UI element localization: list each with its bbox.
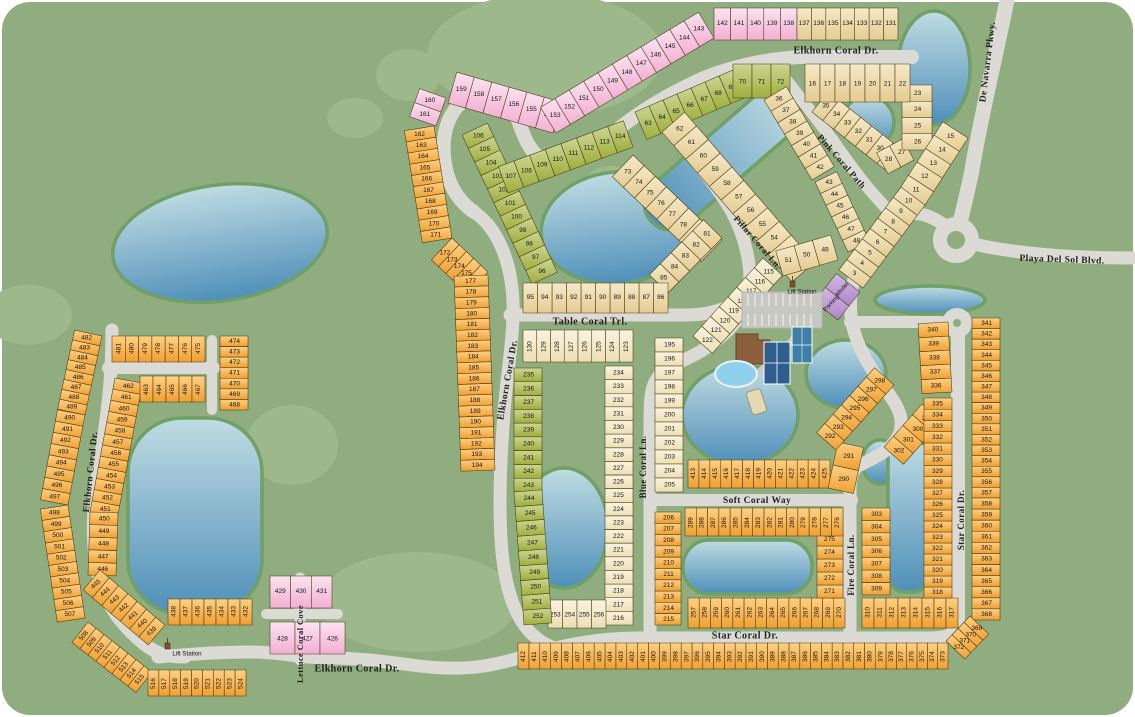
lot-number: 416	[723, 468, 730, 479]
lot-number: 377	[898, 651, 905, 662]
lot-number: 203	[664, 454, 675, 461]
lot-number: 106	[473, 132, 484, 139]
lot-number: 468	[229, 401, 240, 408]
lot-number: 324	[932, 523, 943, 530]
lot-number: 211	[663, 571, 674, 578]
lot-number: 124	[609, 341, 616, 352]
lot-number: 288	[699, 517, 706, 528]
lot-number: 255	[579, 611, 590, 618]
lot-number: 275	[824, 536, 835, 543]
site-plan-map: 1591581571561551541531521511501491481471…	[0, 0, 1135, 717]
lot-number: 459	[117, 416, 128, 423]
lot-number: 35	[822, 102, 830, 109]
lot-number: 415	[712, 468, 719, 479]
lot-number: 113	[599, 139, 610, 146]
lot-number: 120	[720, 317, 731, 324]
lot-number: 355	[981, 468, 992, 475]
lot-number: 300	[912, 426, 923, 433]
lot-number: 506	[63, 600, 74, 607]
lot-number: 105	[479, 146, 490, 153]
lot-number: 463	[143, 384, 150, 395]
lot-number: 191	[471, 429, 482, 436]
lot-number: 291	[843, 453, 854, 460]
lot-number: 285	[733, 517, 740, 528]
lot-number: 97	[532, 254, 540, 261]
lot-number: 56	[747, 207, 755, 214]
lot-number: 490	[64, 415, 75, 422]
lot-number: 219	[613, 574, 624, 581]
lot-number: 59	[712, 166, 720, 173]
lot-number: 376	[909, 651, 916, 662]
lot-number: 6	[876, 239, 880, 246]
lot-number: 121	[711, 327, 722, 334]
lot-number: 214	[663, 605, 674, 612]
lot-number: 317	[949, 607, 956, 618]
lot-number: 58	[723, 180, 731, 187]
lot-number: 338	[929, 355, 940, 362]
lot-number: 129	[540, 341, 547, 352]
lot-number: 12	[921, 173, 929, 180]
lot-number: 187	[469, 386, 480, 393]
lot-number: 347	[981, 384, 992, 391]
lot-number: 39	[796, 130, 804, 137]
lot-number: 125	[595, 341, 602, 352]
lot-number: 209	[663, 548, 674, 555]
lot-number: 413	[690, 468, 697, 479]
lot-number: 471	[229, 370, 240, 377]
lot-number: 280	[789, 517, 796, 528]
lot-number: 240	[523, 440, 534, 447]
lot-number: 198	[664, 384, 675, 391]
lot-number: 269	[825, 607, 832, 618]
lot-number: 352	[981, 436, 992, 443]
lot-number: 235	[523, 372, 534, 379]
lot-number: 189	[470, 408, 481, 415]
lot-number: 348	[981, 394, 992, 401]
lot-number: 107	[505, 173, 516, 180]
lot-number: 407	[575, 651, 582, 662]
lot-number: 10	[905, 198, 913, 205]
lot-number: 432	[243, 606, 250, 617]
lot-number: 60	[700, 153, 708, 160]
lot-number: 222	[613, 533, 624, 540]
lot-number: 44	[831, 191, 839, 198]
lot-number: 335	[932, 400, 943, 407]
lot-number: 55	[759, 221, 767, 228]
lot-number: 302	[893, 447, 904, 454]
lot-number: 400	[651, 651, 658, 662]
lot-number: 178	[465, 289, 476, 296]
lot-number: 149	[607, 77, 618, 84]
lot-number: 115	[763, 269, 774, 276]
lot-number: 177	[465, 278, 476, 285]
lot-number: 146	[650, 52, 661, 59]
lot-number: 458	[115, 428, 126, 435]
lot-number: 313	[901, 607, 908, 618]
lot-number: 263	[758, 607, 765, 618]
lot-number: 434	[219, 606, 226, 617]
lot-number: 192	[471, 440, 482, 447]
lot-number: 229	[613, 438, 624, 445]
lot-number: 119	[728, 308, 739, 315]
lot-number: 206	[663, 514, 674, 521]
lot-number: 247	[527, 539, 538, 546]
lot-number: 293	[833, 424, 844, 431]
lot-number: 111	[568, 150, 578, 157]
lot-number: 399	[662, 651, 669, 662]
lot-number: 202	[664, 440, 675, 447]
lot-number: 309	[871, 586, 882, 593]
lot-number: 127	[568, 341, 575, 352]
lot-number: 254	[564, 611, 575, 618]
lot-number: 323	[932, 534, 943, 541]
lot-number: 249	[529, 569, 540, 576]
lot-number: 421	[778, 468, 785, 479]
lot-number: 419	[756, 468, 763, 479]
lot-number: 429	[275, 588, 286, 595]
lot-number: 290	[838, 476, 849, 483]
lot-number: 50	[803, 252, 811, 259]
lot-number: 522	[215, 678, 222, 689]
lot-number: 274	[824, 549, 835, 556]
lot-number: 252	[533, 613, 544, 620]
lot-number: 519	[183, 678, 190, 689]
lot-number: 215	[663, 616, 674, 623]
lot-number: 306	[871, 548, 882, 555]
lot-number: 151	[578, 95, 589, 102]
lot-number: 232	[613, 397, 624, 404]
lot-number: 148	[622, 69, 633, 76]
lift-station-label: Lift Station	[172, 651, 202, 658]
lot-number: 61	[688, 139, 696, 146]
lot-number: 287	[710, 517, 717, 528]
lot-number: 363	[981, 556, 992, 563]
lake	[683, 540, 812, 594]
lot-number: 385	[813, 651, 820, 662]
lot-number: 333	[932, 423, 943, 430]
lot-number: 54	[771, 234, 779, 241]
lot-number: 33	[844, 120, 852, 127]
lot-number: 358	[981, 500, 992, 507]
lot-number: 201	[664, 426, 675, 433]
lot-number: 417	[734, 468, 741, 479]
lot-number: 135	[828, 20, 839, 27]
lot-number: 344	[981, 352, 992, 359]
lot-number: 491	[62, 426, 73, 433]
lot-number: 364	[981, 567, 992, 574]
lot-number: 267	[802, 607, 809, 618]
lot-number: 264	[769, 607, 776, 618]
lot-number: 70	[739, 78, 747, 85]
lot-number: 447	[98, 553, 109, 560]
lot-number: 241	[523, 454, 534, 461]
lot-number: 77	[669, 211, 677, 218]
lot-number: 62	[676, 125, 684, 132]
lift-station-label: Lift Station	[787, 289, 817, 296]
lot-number: 465	[169, 384, 176, 395]
lot-number: 437	[183, 606, 190, 617]
lot-number: 304	[871, 523, 882, 530]
lot-number: 147	[636, 60, 647, 67]
lot-number: 397	[683, 651, 690, 662]
lot-number: 236	[523, 385, 534, 392]
lot-number: 212	[663, 582, 674, 589]
lot-number: 84	[671, 264, 679, 271]
lot-number: 477	[169, 343, 176, 354]
lot-number: 19	[854, 80, 862, 87]
lot-number: 322	[932, 545, 943, 552]
lot-number: 452	[102, 495, 113, 502]
lot-number: 341	[981, 320, 992, 327]
lot-number: 423	[799, 468, 806, 479]
lot-number: 345	[981, 362, 992, 369]
lot-number: 383	[834, 651, 841, 662]
lift-station-icon	[165, 643, 170, 649]
lot-number: 152	[564, 103, 575, 110]
lot-number: 138	[783, 20, 794, 27]
lot-number: 424	[810, 468, 817, 479]
lot-number: 301	[903, 437, 914, 444]
lot-number: 271	[824, 588, 835, 595]
lot-number: 184	[468, 354, 479, 361]
lot-number: 320	[932, 567, 943, 574]
lot-number: 23	[914, 90, 922, 97]
lot-number: 82	[693, 242, 701, 249]
street-label: Elkhorn Coral Dr.	[314, 663, 399, 674]
lot-number: 482	[81, 335, 92, 342]
lot-number: 375	[919, 651, 926, 662]
lot-number: 261	[735, 607, 742, 618]
swimming-pool	[715, 361, 757, 387]
lot-number: 243	[523, 482, 534, 489]
lot-number: 473	[229, 349, 240, 356]
lot-number: 256	[593, 611, 604, 618]
lot-number: 90	[599, 294, 607, 301]
lot-number: 26	[914, 139, 922, 146]
lot-number: 496	[51, 482, 62, 489]
lot-number: 216	[613, 615, 624, 622]
lot-number: 183	[467, 343, 478, 350]
lot-number: 162	[414, 131, 425, 138]
lot-number: 502	[56, 555, 67, 562]
lot-number: 342	[981, 331, 992, 338]
lot-number: 316	[937, 607, 944, 618]
terrain-patch	[327, 98, 383, 138]
lot-number: 164	[418, 153, 429, 160]
lot-number: 223	[613, 519, 624, 526]
lot-number: 405	[596, 651, 603, 662]
lot-number: 131	[885, 20, 896, 27]
lot-number: 294	[841, 415, 852, 422]
lot-number: 401	[640, 651, 647, 662]
lot-number: 278	[812, 517, 819, 528]
lake	[888, 440, 930, 592]
lot-number: 339	[928, 341, 939, 348]
lot-number: 270	[836, 607, 843, 618]
lot-number: 92	[570, 294, 578, 301]
lot-number: 362	[981, 545, 992, 552]
lot-number: 308	[871, 573, 882, 580]
lot-number: 42	[817, 164, 825, 171]
lot-number: 207	[663, 526, 674, 533]
lot-number: 112	[584, 144, 595, 151]
lot-number: 234	[613, 370, 624, 377]
lot-number: 336	[931, 383, 942, 390]
lot-number: 21	[884, 80, 892, 87]
lot-number: 157	[491, 96, 502, 103]
lot-number: 501	[54, 543, 65, 550]
site-plan-page: 1591581571561551541531521511501491481471…	[0, 0, 1135, 717]
lot-number: 81	[703, 231, 711, 238]
lot-number: 3	[853, 270, 857, 277]
lot-number: 67	[701, 96, 709, 103]
lot-number: 474	[229, 338, 240, 345]
lot-number: 218	[613, 588, 624, 595]
lot-number: 190	[470, 419, 481, 426]
lot-number: 460	[119, 405, 130, 412]
lot-number: 89	[614, 294, 622, 301]
lot-number: 476	[182, 343, 189, 354]
lot-number: 227	[613, 465, 624, 472]
lot-number: 182	[467, 332, 478, 339]
lot-number: 387	[791, 651, 798, 662]
lot-number: 481	[115, 343, 122, 354]
lot-number: 142	[717, 20, 728, 27]
lot-number: 500	[52, 532, 63, 539]
lake	[128, 418, 262, 614]
lot-number: 451	[100, 506, 111, 513]
lot-number: 318	[932, 589, 943, 596]
lot-number: 237	[523, 399, 534, 406]
lift-station-icon	[790, 281, 795, 287]
lot-number: 272	[824, 575, 835, 582]
lot-number: 68	[715, 90, 723, 97]
lot-number: 454	[106, 472, 117, 479]
lot-number: 386	[802, 651, 809, 662]
lot-number: 31	[866, 137, 874, 144]
lot-number: 43	[825, 179, 833, 186]
lot-number: 518	[172, 678, 179, 689]
lot-number: 431	[316, 588, 327, 595]
lot-number: 420	[767, 468, 774, 479]
lot-number: 159	[456, 86, 467, 93]
lot-number: 475	[195, 343, 202, 354]
lot-number: 85	[660, 275, 668, 282]
lot-number: 283	[755, 517, 762, 528]
lot-number: 140	[750, 20, 761, 27]
lot-number: 485	[75, 364, 86, 371]
lot-number: 380	[867, 651, 874, 662]
lot-number: 96	[538, 268, 546, 275]
lot-number: 16	[809, 80, 817, 87]
lot-number: 524	[237, 678, 244, 689]
lot-number: 93	[556, 294, 564, 301]
lot-number: 503	[58, 566, 69, 573]
lot-number: 88	[628, 294, 636, 301]
street-label: Star Coral Dr.	[956, 490, 966, 550]
lake	[875, 286, 985, 314]
lot-number: 5	[868, 249, 872, 256]
lot-number: 436	[195, 606, 202, 617]
lot-number: 435	[207, 606, 214, 617]
lot-number: 499	[51, 521, 62, 528]
lot-number: 181	[467, 321, 478, 328]
lot-number: 379	[877, 651, 884, 662]
lot-number: 194	[472, 462, 483, 469]
street-label: Fire Coral Ln.	[846, 534, 856, 595]
lot-number: 204	[664, 468, 675, 475]
lot-number: 331	[932, 445, 943, 452]
lot-number: 37	[782, 107, 790, 114]
lot-number: 489	[66, 404, 77, 411]
lot-number: 332	[932, 434, 943, 441]
lot-number: 230	[613, 424, 624, 431]
lot-number: 408	[564, 651, 571, 662]
lot-number: 438	[171, 606, 178, 617]
lot-number: 186	[469, 375, 480, 382]
lot-number: 469	[229, 391, 240, 398]
lot-number: 145	[665, 43, 676, 50]
lot-number: 480	[129, 343, 136, 354]
lot-number: 231	[613, 410, 624, 417]
lot-number: 365	[981, 578, 992, 585]
lot-number: 179	[466, 299, 477, 306]
lot-number: 260	[724, 607, 731, 618]
lot-number: 516	[150, 678, 157, 689]
lot-number: 137	[799, 20, 810, 27]
lot-number: 257	[690, 607, 697, 618]
lot-number: 8	[891, 218, 895, 225]
lot-number: 213	[663, 593, 674, 600]
lot-number: 94	[541, 294, 549, 301]
street-label: Lettuce Coral Cove	[295, 605, 305, 683]
lot-number: 453	[104, 483, 115, 490]
lot-number: 307	[871, 561, 882, 568]
lot-number: 346	[981, 373, 992, 380]
lot-number: 326	[932, 501, 943, 508]
lot-number: 466	[182, 384, 189, 395]
lot-number: 158	[473, 91, 484, 98]
lot-number: 136	[813, 20, 824, 27]
lot-number: 78	[680, 221, 688, 228]
lot-number: 505	[61, 589, 72, 596]
lot-number: 143	[693, 26, 704, 33]
lot-number: 66	[687, 102, 695, 109]
lot-number: 483	[79, 344, 90, 351]
lot-number: 384	[823, 651, 830, 662]
lot-number: 133	[856, 20, 867, 27]
lot-number: 488	[69, 394, 80, 401]
lot-number: 130	[527, 341, 534, 352]
lot-number: 373	[940, 651, 947, 662]
lot-number: 281	[778, 517, 785, 528]
lot-number: 374	[929, 651, 936, 662]
street-label: Table Coral Trl.	[553, 316, 628, 327]
lot-number: 180	[466, 310, 477, 317]
lot-number: 47	[847, 226, 855, 233]
lot-number: 393	[726, 651, 733, 662]
lot-number: 27	[898, 149, 906, 156]
lot-number: 195	[664, 342, 675, 349]
lot-number: 244	[524, 495, 535, 502]
lot-number: 523	[226, 678, 233, 689]
lot-number: 45	[836, 203, 844, 210]
lot-number: 34	[833, 111, 841, 118]
lot-number: 312	[889, 607, 896, 618]
lot-number: 167	[423, 187, 434, 194]
lot-number: 262	[746, 607, 753, 618]
lot-number: 360	[981, 522, 992, 529]
